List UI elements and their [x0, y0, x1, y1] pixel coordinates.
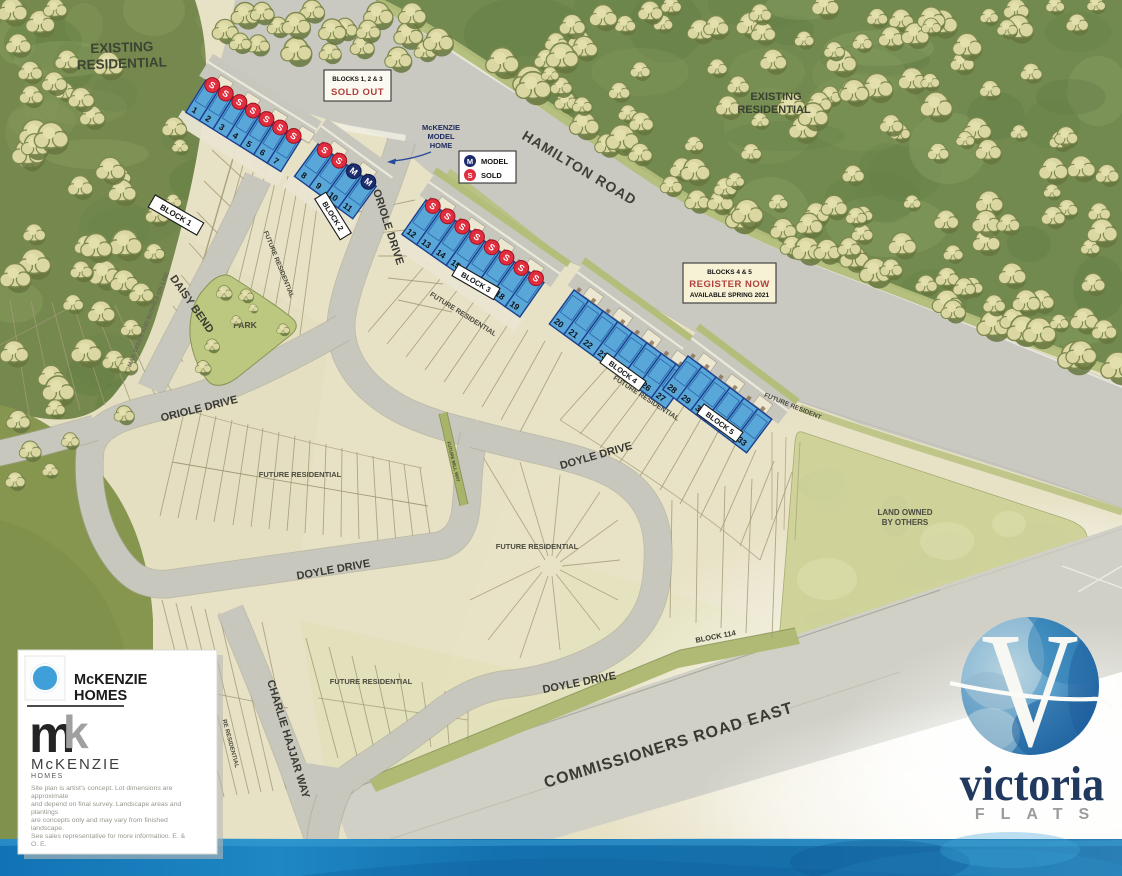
svg-text:Site plan is artist's concept.: Site plan is artist's concept. Lot dimen… — [31, 785, 173, 792]
svg-text:HOME: HOME — [430, 141, 453, 150]
svg-text:victoria: victoria — [960, 757, 1104, 812]
svg-text:landscape.: landscape. — [31, 825, 64, 832]
svg-text:McKENZIE: McKENZIE — [31, 756, 121, 773]
svg-text:plantings: plantings — [31, 809, 59, 816]
svg-text:EXISTING: EXISTING — [750, 91, 801, 103]
svg-text:S: S — [467, 171, 472, 180]
svg-text:FUTURE RESIDENTIAL: FUTURE RESIDENTIAL — [259, 470, 342, 479]
svg-text:RESIDENTIAL: RESIDENTIAL — [737, 104, 811, 116]
svg-text:LAND OWNED: LAND OWNED — [877, 508, 932, 517]
svg-text:SOLD: SOLD — [481, 171, 502, 180]
svg-text:k: k — [63, 706, 89, 758]
svg-text:BLOCKS 1, 2 & 3: BLOCKS 1, 2 & 3 — [332, 76, 383, 83]
svg-text:RESIDENTIAL: RESIDENTIAL — [77, 54, 167, 72]
svg-text:EXISTING: EXISTING — [90, 39, 154, 56]
svg-text:AVAILABLE SPRING 2021: AVAILABLE SPRING 2021 — [690, 292, 770, 299]
svg-text:BY OTHERS: BY OTHERS — [882, 518, 929, 527]
svg-text:McKENZIE: McKENZIE — [74, 672, 148, 688]
svg-text:and depend on final survey. La: and depend on final survey. Landscape ar… — [31, 801, 181, 808]
svg-text:HOMES: HOMES — [74, 688, 128, 704]
svg-text:See sales representative for m: See sales representative for more inform… — [31, 833, 186, 840]
svg-text:SOLD OUT: SOLD OUT — [331, 87, 384, 98]
svg-text:FLATS: FLATS — [975, 806, 1105, 823]
svg-text:MODEL: MODEL — [427, 132, 455, 141]
svg-text:MODEL: MODEL — [481, 157, 509, 166]
svg-text:are concepts only and may vary: are concepts only and may vary from fini… — [31, 817, 168, 824]
svg-text:O. E.: O. E. — [31, 841, 47, 848]
svg-text:HOMES: HOMES — [31, 773, 64, 780]
svg-text:McKENZIE: McKENZIE — [422, 123, 460, 132]
svg-text:REGISTER NOW: REGISTER NOW — [689, 279, 769, 290]
svg-text:BLOCKS 4 & 5: BLOCKS 4 & 5 — [707, 269, 752, 276]
svg-text:M: M — [467, 157, 473, 166]
svg-text:approximate: approximate — [31, 793, 69, 800]
svg-text:FUTURE RESIDENTIAL: FUTURE RESIDENTIAL — [330, 677, 413, 686]
svg-text:FUTURE RESIDENTIAL: FUTURE RESIDENTIAL — [496, 542, 579, 551]
